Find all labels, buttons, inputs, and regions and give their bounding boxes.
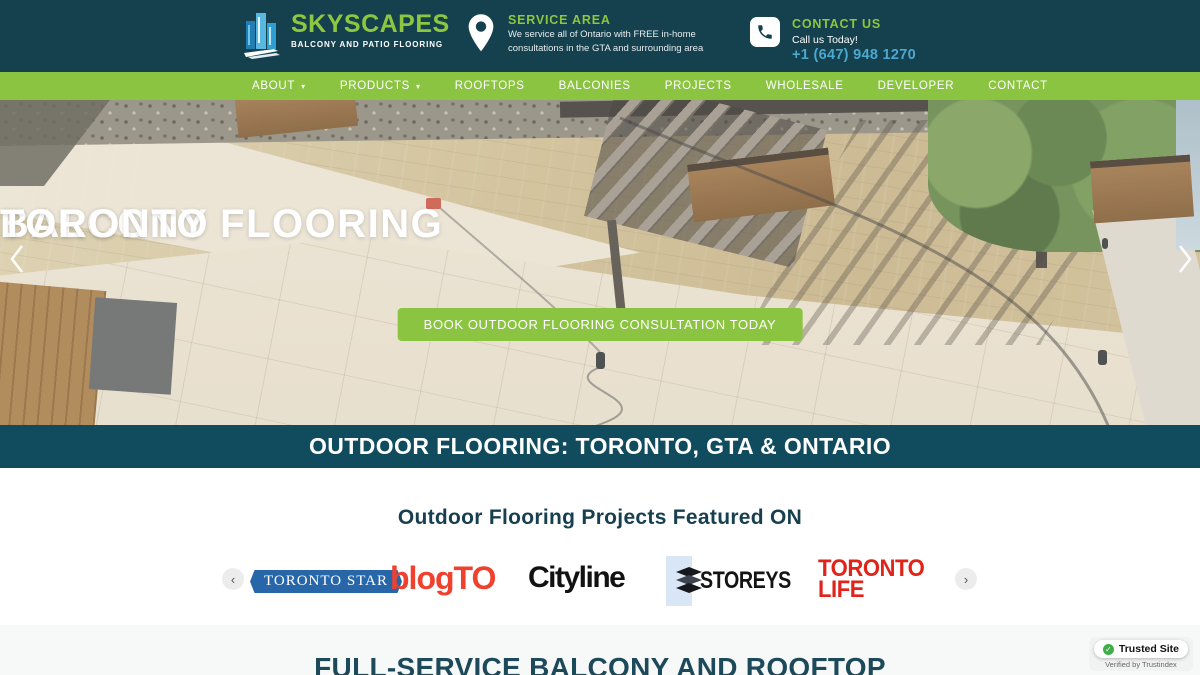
- contact-title: CONTACT US: [792, 17, 916, 31]
- site-logo[interactable]: SKYSCAPES BALCONY AND PATIO FLOORING: [244, 11, 450, 64]
- featured-title: Outdoor Flooring Projects Featured ON: [0, 506, 1200, 530]
- service-area-block: SERVICE AREA We service all of Ontario w…: [466, 13, 703, 60]
- hero-next-arrow-icon[interactable]: [1174, 242, 1196, 276]
- hero-photo-overlay: [0, 100, 1200, 425]
- trustindex-badge[interactable]: ✓ Trusted Site Verified by Trustindex: [1089, 637, 1193, 671]
- nav-item-label: WHOLESALE: [766, 80, 844, 92]
- storeys-logo: STOREYS: [666, 556, 811, 606]
- hero-carousel: BALCONY FLOORING TORONTO BOOK OUTDOOR FL…: [0, 100, 1200, 425]
- nav-item-label: DEVELOPER: [878, 80, 955, 92]
- trust-badge-subtitle: Verified by Trustindex: [1094, 660, 1188, 669]
- chevron-down-icon: ▾: [301, 82, 306, 91]
- service-area-line2: consultations in the GTA and surrounding…: [508, 43, 703, 55]
- nav-item-rooftops[interactable]: ROOFTOPS: [455, 80, 525, 92]
- logo-name: SKYSCAPES: [291, 11, 450, 37]
- nav-item-about[interactable]: ABOUT▾: [252, 80, 306, 92]
- location-pin-icon: [466, 13, 496, 60]
- nav-item-label: ABOUT: [252, 80, 295, 92]
- logo-text: SKYSCAPES BALCONY AND PATIO FLOORING: [291, 11, 450, 49]
- top-header: SKYSCAPES BALCONY AND PATIO FLOORING SER…: [0, 0, 1200, 72]
- trust-badge-label: Trusted Site: [1119, 643, 1179, 655]
- nav-item-products[interactable]: PRODUCTS▾: [340, 80, 421, 92]
- nav-item-wholesale[interactable]: WHOLESALE: [766, 80, 844, 92]
- main-nav: ABOUT▾PRODUCTS▾ROOFTOPSBALCONIESPROJECTS…: [0, 72, 1200, 100]
- contact-subtitle: Call us Today!: [792, 34, 916, 46]
- nav-item-label: PROJECTS: [665, 80, 732, 92]
- nav-item-balconies[interactable]: BALCONIES: [559, 80, 631, 92]
- toronto-life-line2: LIFE: [818, 579, 924, 600]
- page: SKYSCAPES BALCONY AND PATIO FLOORING SER…: [0, 0, 1200, 675]
- trust-check-icon: ✓: [1103, 644, 1114, 655]
- phone-icon: [750, 17, 780, 47]
- region-band-title: OUTDOOR FLOORING: TORONTO, GTA & ONTARIO: [309, 433, 891, 460]
- skyline-buildings-icon: [244, 11, 284, 64]
- nav-item-contact[interactable]: CONTACT: [988, 80, 1048, 92]
- nav-item-label: BALCONIES: [559, 80, 631, 92]
- nav-item-developer[interactable]: DEVELOPER: [878, 80, 955, 92]
- chevron-down-icon: ▾: [416, 82, 421, 91]
- nav-item-label: CONTACT: [988, 80, 1048, 92]
- contact-block: CONTACT US Call us Today! +1 (647) 948 1…: [750, 17, 916, 63]
- nav-item-projects[interactable]: PROJECTS: [665, 80, 732, 92]
- logo-tagline: BALCONY AND PATIO FLOORING: [291, 40, 450, 49]
- book-consultation-button[interactable]: BOOK OUTDOOR FLOORING CONSULTATION TODAY: [398, 308, 803, 341]
- next-section: FULL-SERVICE BALCONY AND ROOFTOP: [0, 625, 1200, 675]
- next-section-title: FULL-SERVICE BALCONY AND ROOFTOP: [0, 652, 1200, 675]
- storeys-wordmark: STOREYS: [700, 567, 791, 595]
- region-band: OUTDOOR FLOORING: TORONTO, GTA & ONTARIO: [0, 425, 1200, 468]
- contact-phone-number[interactable]: +1 (647) 948 1270: [792, 47, 916, 63]
- logos-next-arrow-icon[interactable]: ›: [955, 568, 977, 590]
- cityline-logo: Cityline: [528, 561, 624, 595]
- service-area-title: SERVICE AREA: [508, 13, 703, 27]
- toronto-star-logo: TORONTO STAR: [250, 570, 402, 593]
- service-area-line1: We service all of Ontario with FREE in-h…: [508, 29, 703, 41]
- featured-section: Outdoor Flooring Projects Featured ON ‹ …: [0, 468, 1200, 625]
- hero-title-line2: TORONTO: [0, 202, 209, 247]
- hero-prev-arrow-icon[interactable]: [6, 242, 28, 276]
- toronto-life-logo: TORONTO LIFE: [818, 558, 924, 600]
- logos-prev-arrow-icon[interactable]: ‹: [222, 568, 244, 590]
- blogto-logo: blogTO: [390, 560, 495, 597]
- nav-item-label: PRODUCTS: [340, 80, 410, 92]
- nav-item-label: ROOFTOPS: [455, 80, 525, 92]
